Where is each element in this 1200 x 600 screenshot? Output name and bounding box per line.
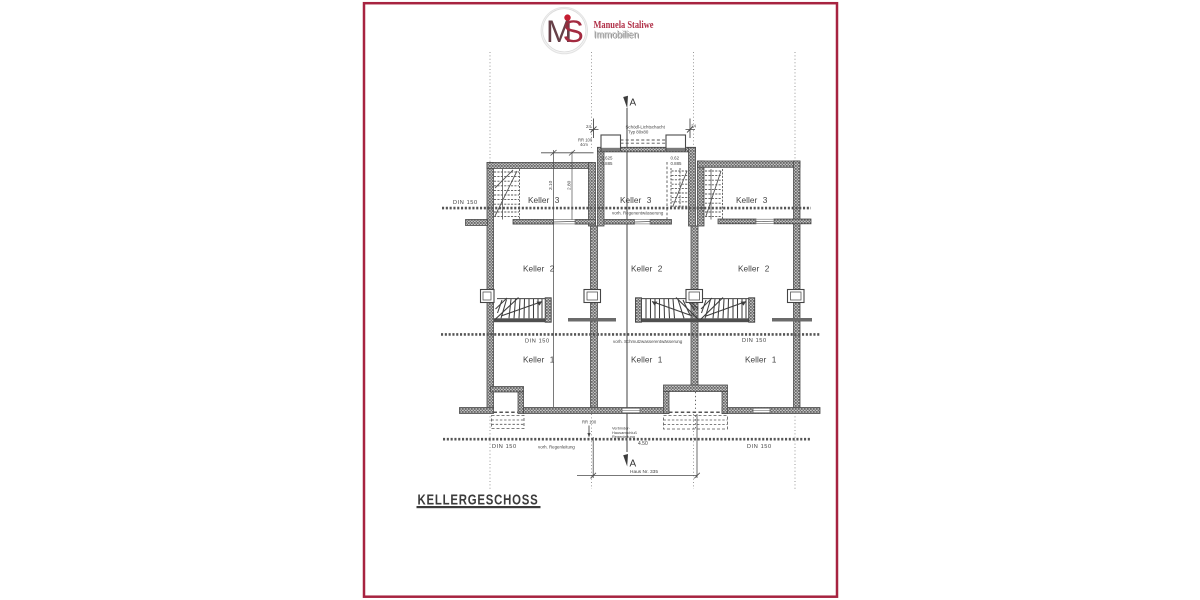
svg-text:Keller3: Keller3 xyxy=(620,195,652,205)
svg-text:DIN 150: DIN 150 xyxy=(742,338,767,344)
svg-text:Keller1: Keller1 xyxy=(745,355,777,365)
svg-text:vorh. Regenleitung: vorh. Regenleitung xyxy=(538,445,575,450)
svg-text:DIN 150: DIN 150 xyxy=(453,200,478,206)
svg-text:0.625: 0.625 xyxy=(602,156,614,161)
svg-text:Keller2: Keller2 xyxy=(523,264,555,274)
svg-text:A: A xyxy=(630,459,637,470)
svg-text:Haus Nr. 335: Haus Nr. 335 xyxy=(630,469,658,475)
svg-text:0.885: 0.885 xyxy=(671,161,683,166)
svg-text:vorh. Schmutzwasserentwässerun: vorh. Schmutzwasserentwässerung xyxy=(613,339,683,344)
svg-text:Immobilien: Immobilien xyxy=(594,29,639,41)
svg-text:0.62: 0.62 xyxy=(671,156,680,161)
svg-text:Keller1: Keller1 xyxy=(631,355,663,365)
svg-text:24: 24 xyxy=(691,124,697,129)
svg-text:DIN 150: DIN 150 xyxy=(525,339,550,345)
svg-text:DIN 150: DIN 150 xyxy=(747,444,772,450)
svg-text:2.80: 2.80 xyxy=(567,180,573,190)
svg-text:Typ 80x80: Typ 80x80 xyxy=(628,129,649,134)
svg-text:4cm: 4cm xyxy=(580,142,588,147)
svg-text:RR 100: RR 100 xyxy=(582,420,597,425)
svg-text:vorh. Regenentwässerung: vorh. Regenentwässerung xyxy=(612,211,664,216)
svg-text:Keller3: Keller3 xyxy=(736,195,768,205)
svg-text:3.10: 3.10 xyxy=(548,180,554,190)
svg-text:Keller2: Keller2 xyxy=(738,264,770,274)
svg-text:0.885: 0.885 xyxy=(602,161,614,166)
svg-text:Keller1: Keller1 xyxy=(523,355,555,365)
svg-text:24: 24 xyxy=(586,124,592,129)
svg-text:KELLERGESCHOSS: KELLERGESCHOSS xyxy=(418,492,539,508)
svg-text:Keller3: Keller3 xyxy=(528,195,560,205)
svg-text:4.50: 4.50 xyxy=(638,441,648,447)
svg-text:Keller2: Keller2 xyxy=(631,264,663,274)
svg-text:A: A xyxy=(630,98,637,109)
svg-text:DIN 150: DIN 150 xyxy=(492,444,517,450)
svg-text:Regenleitung: Regenleitung xyxy=(612,434,635,439)
